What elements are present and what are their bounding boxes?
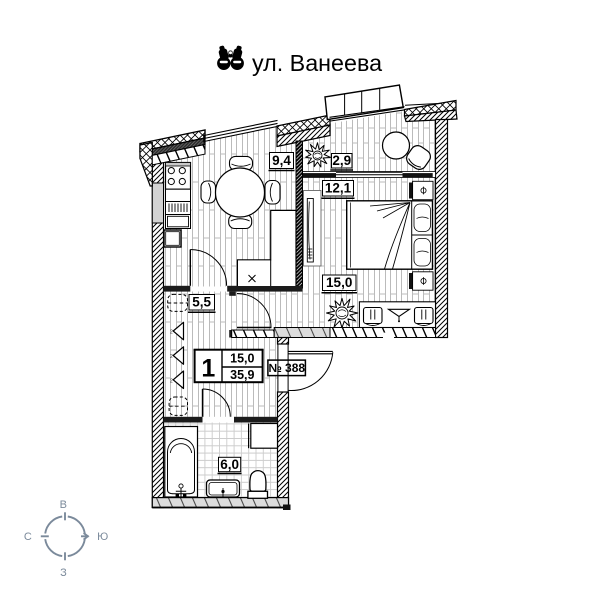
svg-text:Ю: Ю	[97, 531, 108, 543]
svg-text:5,5: 5,5	[192, 295, 211, 310]
svg-text:С: С	[24, 531, 32, 543]
svg-text:2: 2	[170, 378, 173, 384]
svg-text:№ 388: № 388	[268, 361, 305, 375]
svg-text:2: 2	[170, 354, 173, 360]
svg-text:1: 1	[201, 354, 215, 382]
svg-text:15,0: 15,0	[326, 275, 352, 290]
svg-text:В: В	[60, 499, 67, 511]
svg-text:2: 2	[170, 330, 173, 336]
svg-text:9,4: 9,4	[272, 153, 291, 168]
svg-text:З: З	[60, 567, 67, 579]
svg-text:15,0: 15,0	[230, 352, 254, 366]
svg-text:2,9: 2,9	[332, 153, 351, 168]
svg-text:35,9: 35,9	[230, 368, 254, 382]
svg-text:12,1: 12,1	[325, 181, 352, 196]
svg-text:ул. Ванеева: ул. Ванеева	[252, 50, 382, 76]
svg-text:6,0: 6,0	[220, 457, 239, 472]
